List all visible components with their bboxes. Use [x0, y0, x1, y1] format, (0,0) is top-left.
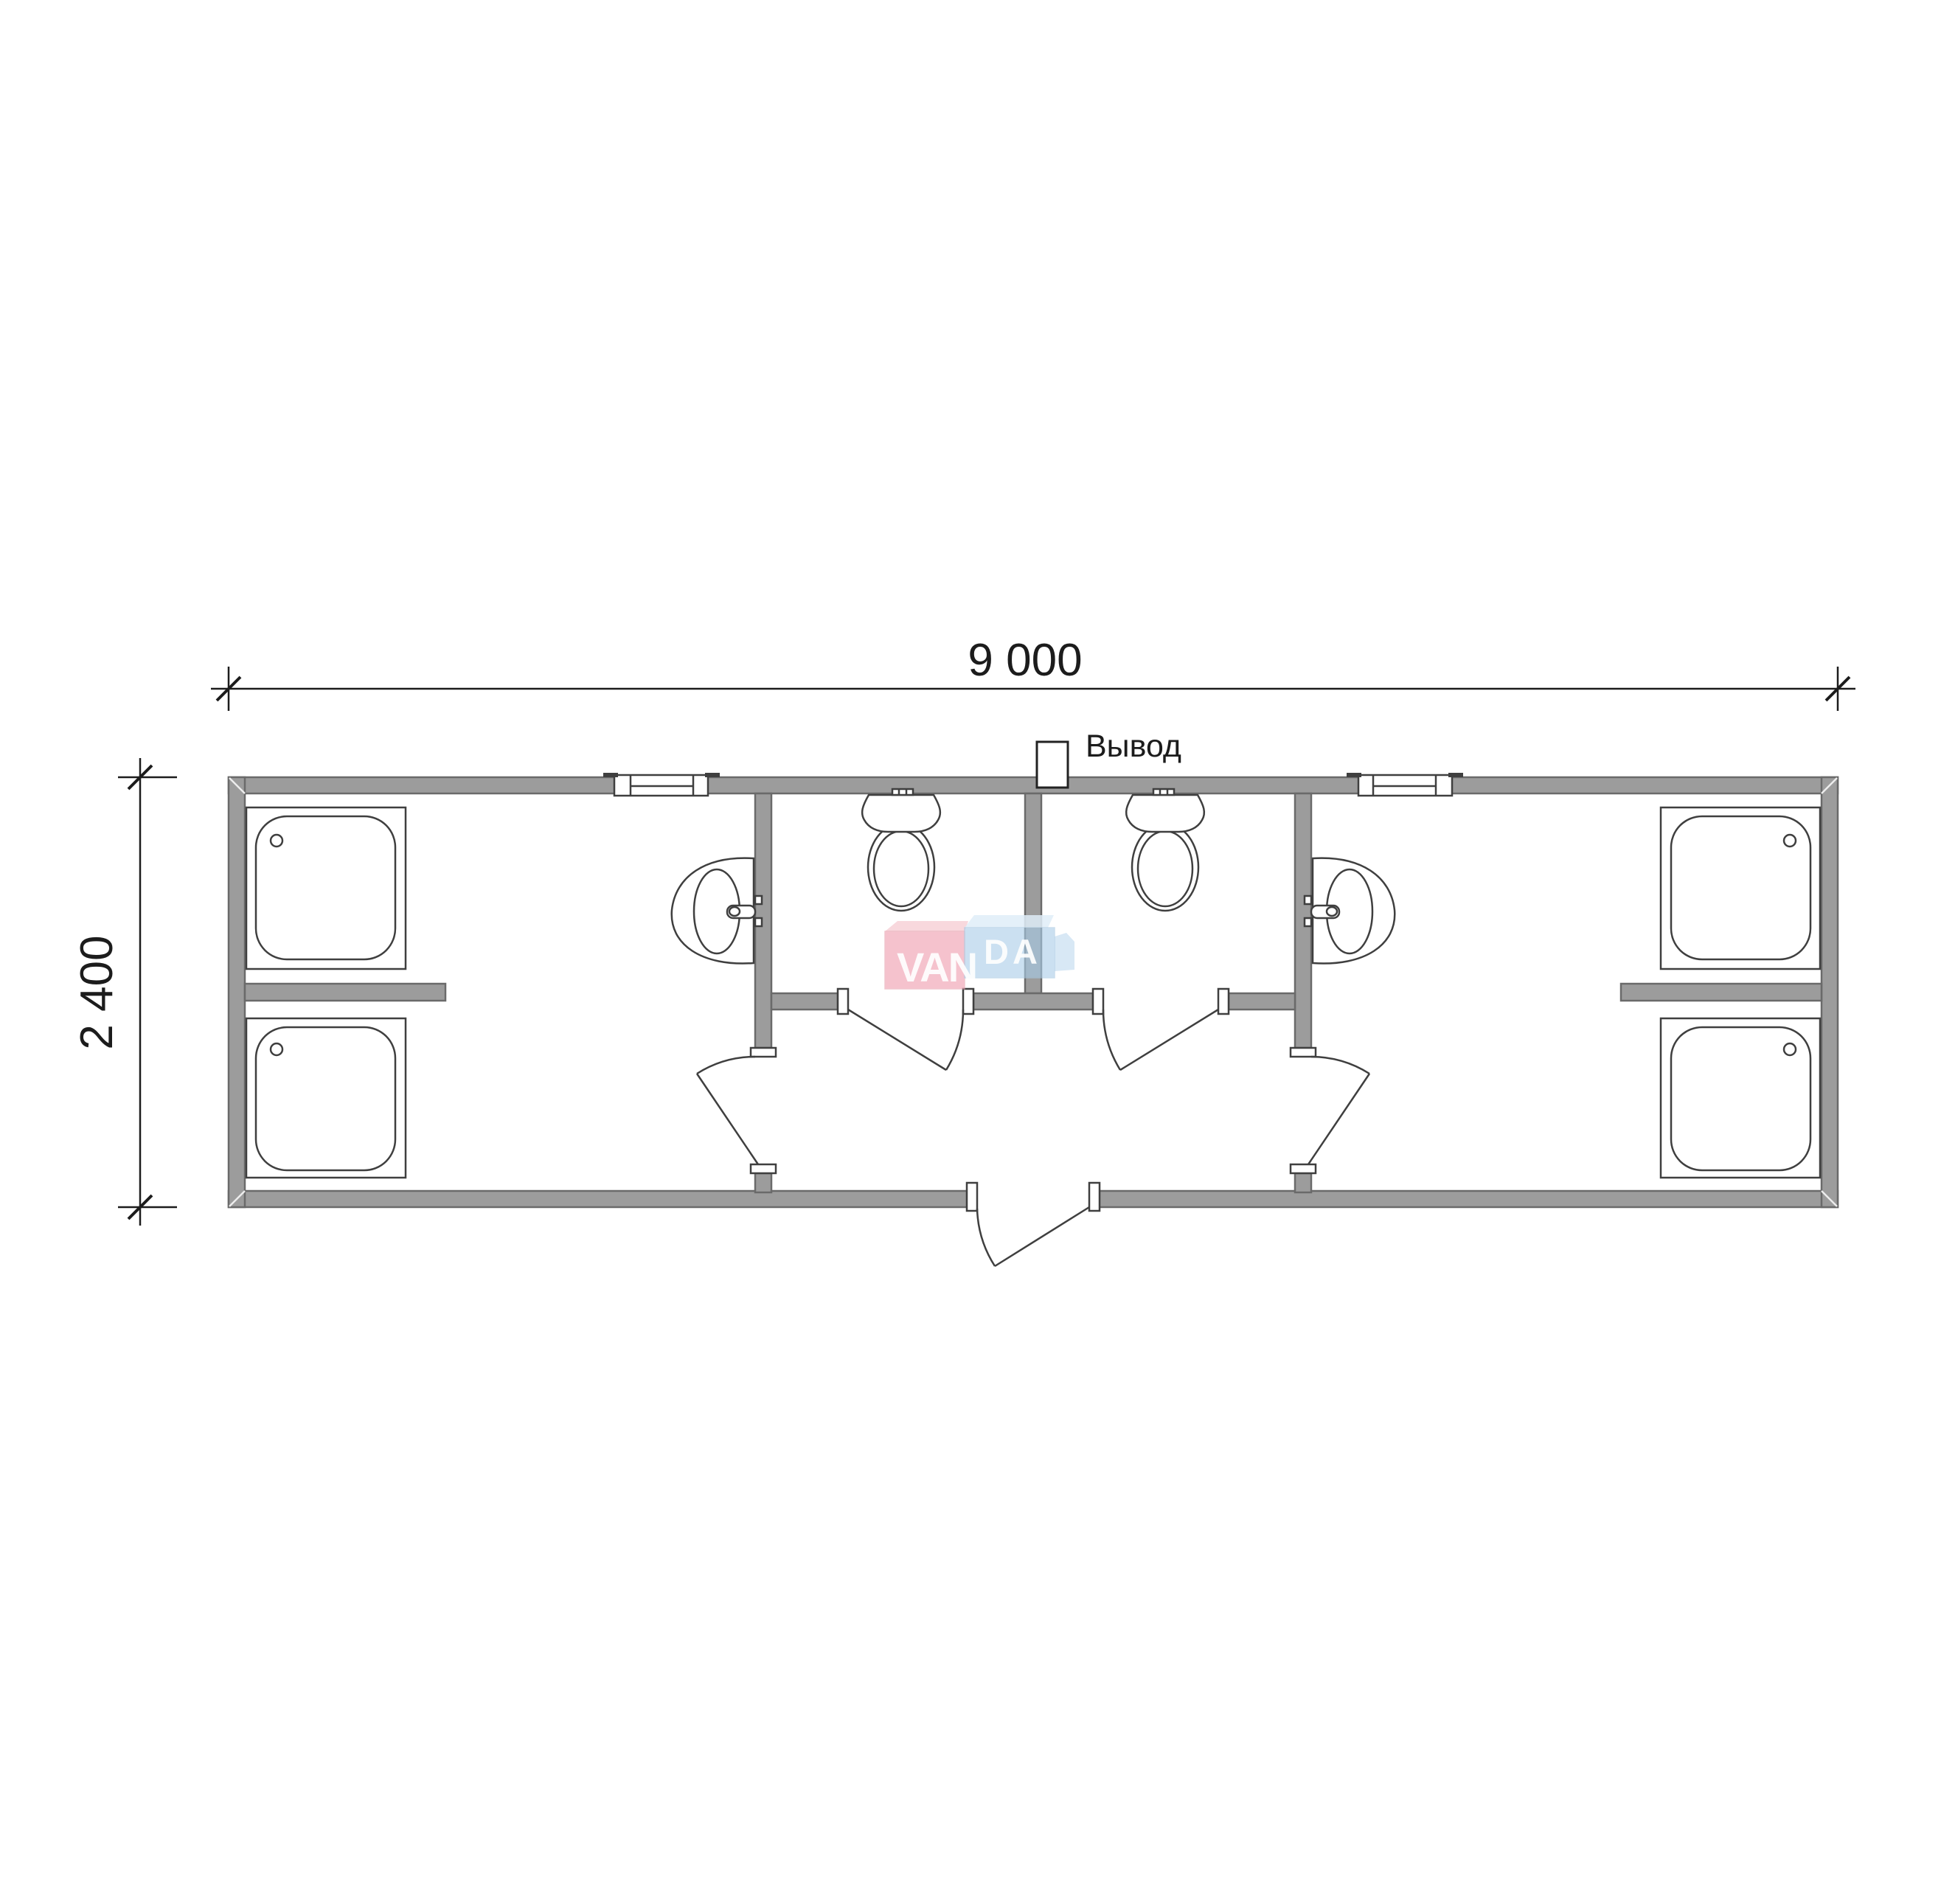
dim-width-label: 9 000 [968, 635, 1082, 686]
logo-blue-tab [1055, 933, 1074, 971]
wc-wall-central-segment [973, 993, 1093, 1010]
entrance-opening [977, 1189, 1089, 1209]
logo-text-van: VAN [897, 944, 976, 990]
outlet-box [1037, 742, 1068, 788]
dim-height-label: 2 400 [72, 935, 122, 1049]
walls [229, 777, 1838, 1207]
door-jamb [967, 1183, 977, 1211]
drawing-canvas: 9 000 2 400 Вывод [0, 0, 1941, 1904]
logo-pink-top-face [885, 921, 968, 931]
floor-plan: 9 000 2 400 Вывод [0, 0, 1941, 1904]
wall-right [1822, 777, 1838, 1207]
left-half [245, 773, 973, 1192]
logo-blue-top-face [965, 915, 1054, 928]
right-half-module [1093, 773, 1822, 1192]
door-jamb [1089, 1183, 1100, 1211]
door-leaf [995, 1207, 1089, 1266]
door-swing-arc [977, 1209, 995, 1266]
dimension-height: 2 400 [72, 758, 177, 1226]
wall-top [229, 777, 1838, 793]
watermark-logo: VAN DA [885, 915, 1074, 990]
entrance-door [967, 1183, 1100, 1266]
logo-text-da: DA [984, 932, 1041, 971]
right-half [1093, 773, 1822, 1192]
wall-left [229, 777, 245, 1207]
outlet-label: Вывод [1086, 729, 1181, 764]
dimension-width: 9 000 [211, 635, 1855, 711]
